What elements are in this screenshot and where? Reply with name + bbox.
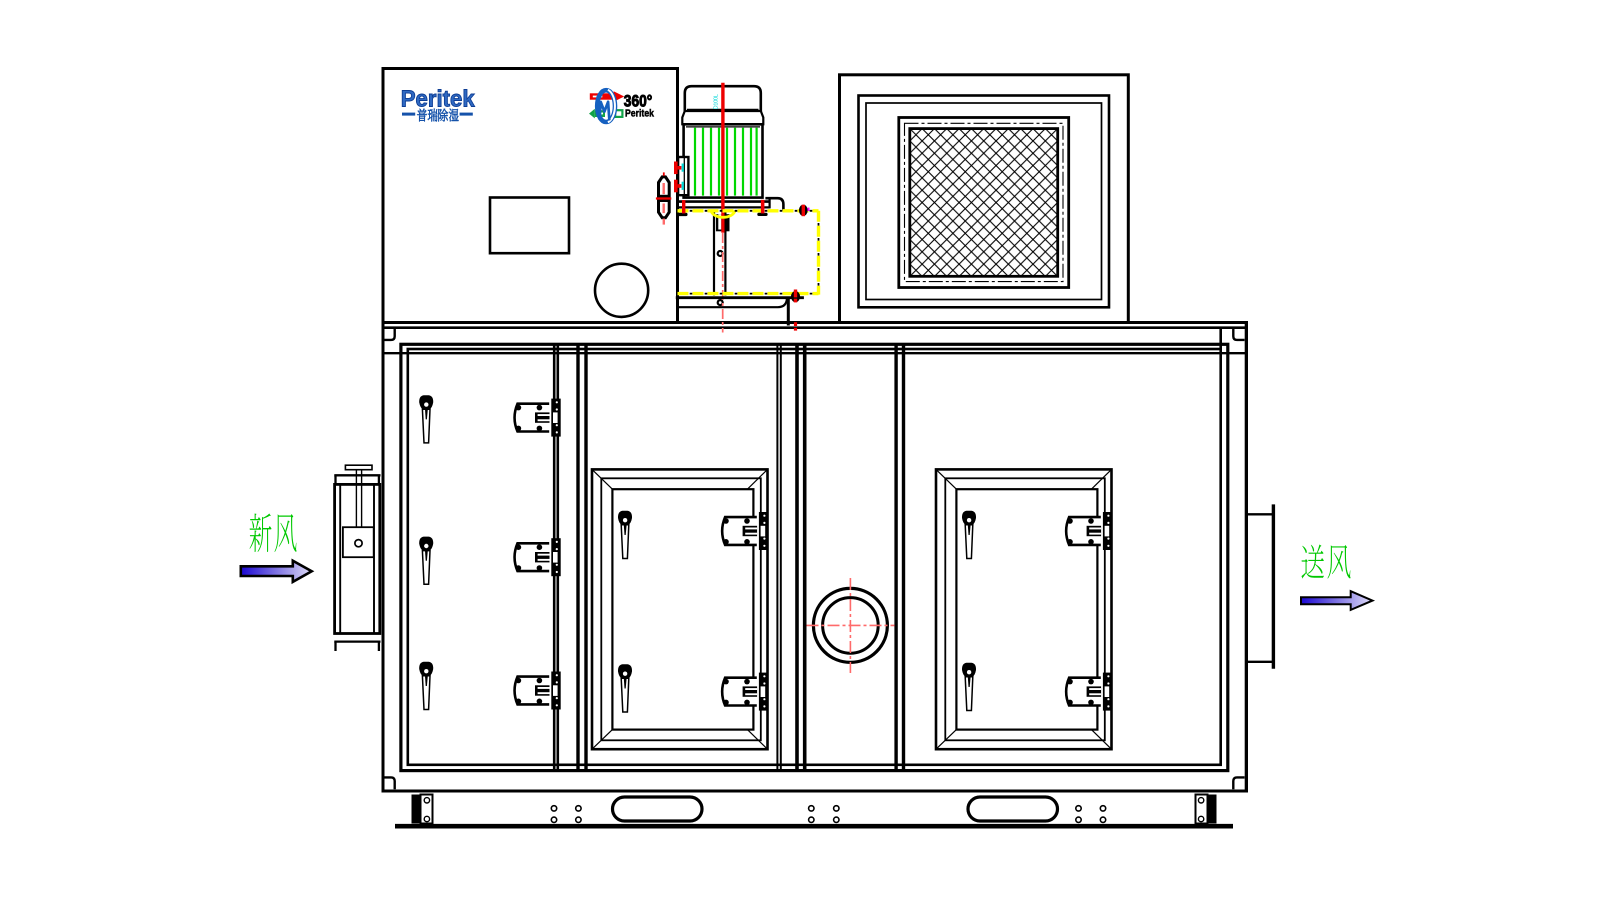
- svg-text:Peritek: Peritek: [625, 108, 654, 119]
- svg-text:D100L: D100L: [714, 93, 720, 109]
- svg-text:Peritek: Peritek: [401, 86, 475, 112]
